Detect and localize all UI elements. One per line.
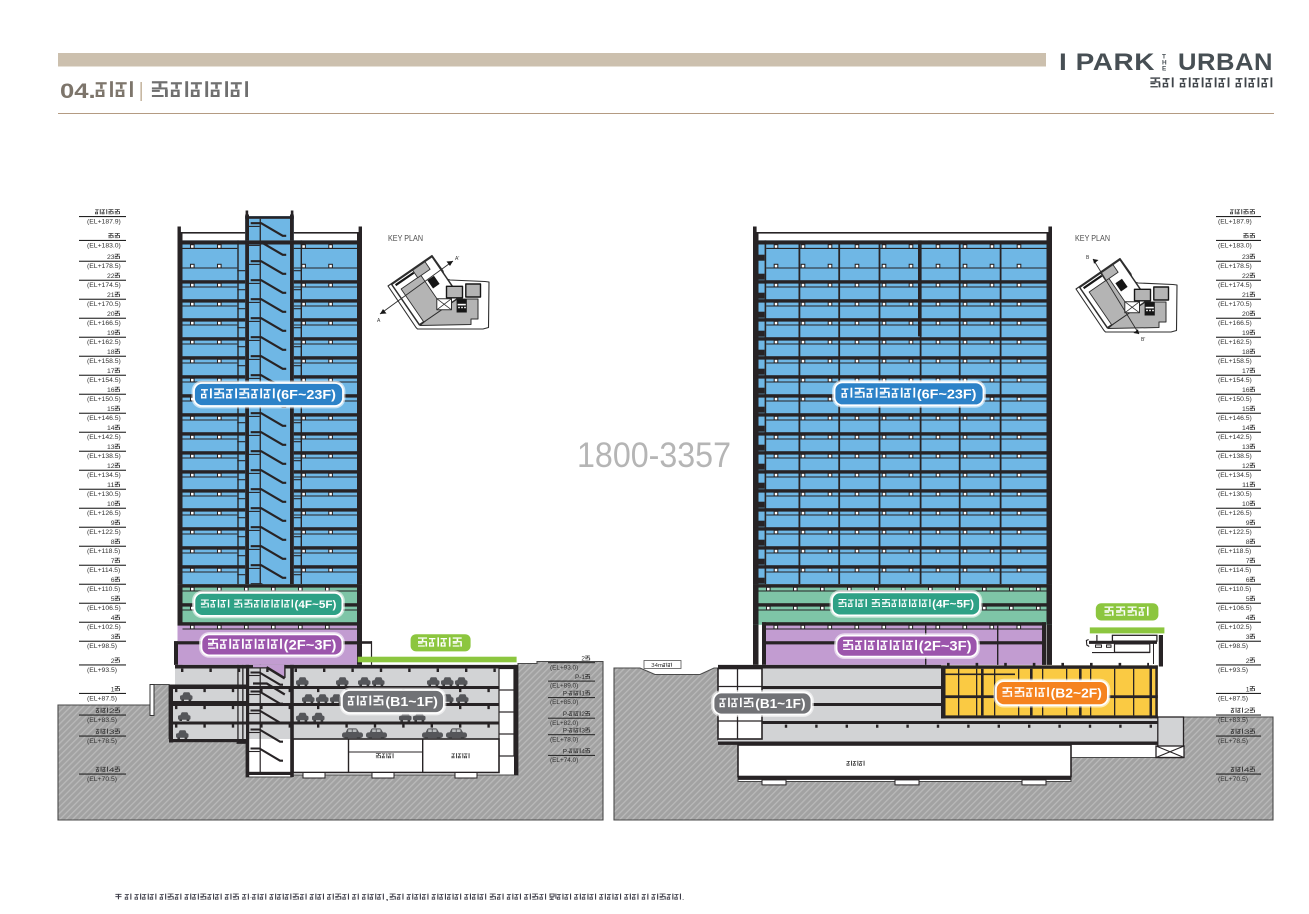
svg-text:22: 22 <box>1242 273 1250 280</box>
svg-text:2: 2 <box>581 656 585 663</box>
svg-text:10: 10 <box>107 501 115 508</box>
svg-text:(EL+138.5): (EL+138.5) <box>87 453 121 460</box>
svg-text:1: 1 <box>111 686 115 693</box>
svg-text:(EL+170.5): (EL+170.5) <box>1218 301 1252 308</box>
svg-text:(EL+138.5): (EL+138.5) <box>1218 453 1252 460</box>
svg-text:B': B' <box>1141 337 1145 343</box>
svg-text:(EL+146.5): (EL+146.5) <box>87 415 121 422</box>
svg-text:(4F~5F): (4F~5F) <box>295 599 337 611</box>
svg-text:12: 12 <box>1242 463 1250 470</box>
svg-text:(EL+93.5): (EL+93.5) <box>87 667 117 674</box>
svg-text:2: 2 <box>1246 658 1250 665</box>
svg-text:(EL+142.5): (EL+142.5) <box>1218 434 1252 441</box>
svg-text:(EL+106.5): (EL+106.5) <box>87 605 121 612</box>
svg-text:4: 4 <box>581 748 585 755</box>
svg-text:8: 8 <box>1246 539 1250 546</box>
svg-text:16: 16 <box>107 387 115 394</box>
svg-text:(EL+178.5): (EL+178.5) <box>87 263 121 270</box>
svg-text:4: 4 <box>1244 767 1250 774</box>
svg-text:19: 19 <box>1242 330 1250 337</box>
svg-text:(B1~1F): (B1~1F) <box>385 694 438 709</box>
svg-text:I PARK: I PARK <box>1059 49 1155 76</box>
svg-text:(B2~2F): (B2~2F) <box>1051 686 1102 701</box>
svg-text:20: 20 <box>1242 311 1250 318</box>
svg-text:E: E <box>1162 66 1167 73</box>
svg-text:(2F~3F): (2F~3F) <box>284 638 337 653</box>
svg-text:8: 8 <box>111 539 115 546</box>
svg-text:13: 13 <box>107 444 115 451</box>
svg-text:(EL+150.5): (EL+150.5) <box>1218 396 1252 403</box>
svg-text:(EL+150.5): (EL+150.5) <box>87 396 121 403</box>
svg-text:(EL+122.5): (EL+122.5) <box>1218 529 1252 536</box>
svg-text:(EL+134.5): (EL+134.5) <box>87 472 121 479</box>
svg-text:(4F~5F): (4F~5F) <box>932 599 974 611</box>
svg-text:(EL+70.5): (EL+70.5) <box>1218 776 1248 783</box>
svg-text:(EL+106.5): (EL+106.5) <box>1218 605 1252 612</box>
svg-text:(EL+162.5): (EL+162.5) <box>87 339 121 346</box>
svg-text:21: 21 <box>1242 292 1250 299</box>
svg-text:17: 17 <box>107 368 115 375</box>
svg-text:3: 3 <box>581 728 585 735</box>
svg-text:(EL+93.5): (EL+93.5) <box>1218 667 1248 674</box>
svg-text:(EL+114.5): (EL+114.5) <box>87 567 120 574</box>
svg-text:17: 17 <box>1242 368 1250 375</box>
svg-text:KEY PLAN: KEY PLAN <box>1075 234 1110 243</box>
svg-text:(6F~23F): (6F~23F) <box>917 386 977 401</box>
svg-text:P-: P- <box>563 691 569 698</box>
svg-text:(EL+78.5): (EL+78.5) <box>87 738 117 745</box>
svg-text:(EL+170.5): (EL+170.5) <box>87 301 121 308</box>
svg-text:(EL+82.0): (EL+82.0) <box>550 720 578 727</box>
svg-text:2: 2 <box>581 711 585 718</box>
svg-text:(6F~23F): (6F~23F) <box>276 387 336 402</box>
svg-text:(EL+158.5): (EL+158.5) <box>87 358 121 365</box>
svg-text:(EL+126.5): (EL+126.5) <box>87 510 121 517</box>
svg-text:2: 2 <box>109 708 115 715</box>
svg-text:3: 3 <box>1246 634 1250 641</box>
svg-text:(EL+154.5): (EL+154.5) <box>87 377 121 384</box>
svg-text:(EL+85.0): (EL+85.0) <box>550 699 578 706</box>
svg-text:04.: 04. <box>60 80 96 103</box>
svg-text:(B1~1F): (B1~1F) <box>755 697 805 711</box>
svg-text:(EL+87.5): (EL+87.5) <box>87 695 117 702</box>
svg-text:(EL+142.5): (EL+142.5) <box>87 434 121 441</box>
svg-text:P-: P- <box>563 748 569 755</box>
svg-text:4: 4 <box>111 615 115 622</box>
svg-text:(EL+146.5): (EL+146.5) <box>1218 415 1252 422</box>
svg-text:16: 16 <box>1242 387 1250 394</box>
svg-text:20: 20 <box>107 311 115 318</box>
svg-text:(EL+134.5): (EL+134.5) <box>1218 472 1252 479</box>
svg-text:(EL+162.5): (EL+162.5) <box>1218 339 1252 346</box>
svg-text:(EL+122.5): (EL+122.5) <box>87 529 121 536</box>
svg-text:(EL+183.0): (EL+183.0) <box>87 242 121 249</box>
svg-text:7: 7 <box>111 558 115 565</box>
svg-text:·: · <box>250 893 252 902</box>
svg-text:(EL+174.5): (EL+174.5) <box>87 282 121 289</box>
svg-text:4: 4 <box>109 767 115 774</box>
svg-text:(EL+166.5): (EL+166.5) <box>87 320 121 327</box>
svg-text:(EL+74.0): (EL+74.0) <box>550 757 578 764</box>
svg-text:(EL+187.9): (EL+187.9) <box>1218 219 1252 226</box>
svg-text:(EL+118.5): (EL+118.5) <box>87 548 120 555</box>
svg-text:2: 2 <box>1244 708 1250 715</box>
svg-text:(EL+174.5): (EL+174.5) <box>1218 282 1252 289</box>
svg-text:(EL+78.5): (EL+78.5) <box>1218 738 1248 745</box>
svg-text:5: 5 <box>1246 596 1250 603</box>
svg-text:(EL+89.0): (EL+89.0) <box>550 683 578 690</box>
svg-text:11: 11 <box>1242 482 1250 489</box>
svg-text:(EL+114.5): (EL+114.5) <box>1218 567 1251 574</box>
svg-text:P-: P- <box>563 728 569 735</box>
svg-text:7: 7 <box>1246 558 1250 565</box>
svg-text:12: 12 <box>107 463 115 470</box>
svg-text:(EL+83.5): (EL+83.5) <box>1218 717 1248 724</box>
svg-text:(EL+102.5): (EL+102.5) <box>87 624 121 631</box>
svg-text:(EL+130.5): (EL+130.5) <box>1218 491 1252 498</box>
svg-text:(EL+110.5): (EL+110.5) <box>87 586 120 593</box>
svg-text:5: 5 <box>111 596 115 603</box>
svg-text:3: 3 <box>109 729 115 736</box>
svg-text:3: 3 <box>1244 729 1250 736</box>
svg-text:3: 3 <box>111 634 115 641</box>
svg-text:9: 9 <box>1246 520 1250 527</box>
svg-text:15: 15 <box>1242 406 1250 413</box>
svg-text:19: 19 <box>107 330 115 337</box>
svg-text:2: 2 <box>111 658 115 665</box>
svg-text:(EL+98.5): (EL+98.5) <box>87 643 117 650</box>
svg-text:1800-3357: 1800-3357 <box>577 436 731 475</box>
svg-text:(EL+93.0): (EL+93.0) <box>550 664 578 671</box>
svg-text:4: 4 <box>1246 615 1250 622</box>
svg-text:KEY PLAN: KEY PLAN <box>388 234 423 243</box>
svg-text:23: 23 <box>107 254 115 261</box>
svg-text:(EL+118.5): (EL+118.5) <box>1218 548 1251 555</box>
svg-text:P-: P- <box>563 711 569 718</box>
svg-text:14: 14 <box>1242 425 1250 432</box>
svg-text:(EL+178.5): (EL+178.5) <box>1218 263 1252 270</box>
svg-text:34m: 34m <box>651 663 663 669</box>
svg-text:(EL+70.5): (EL+70.5) <box>87 776 117 783</box>
svg-text:13: 13 <box>1242 444 1250 451</box>
svg-text:(EL+187.9): (EL+187.9) <box>87 219 121 226</box>
svg-text:1: 1 <box>1246 686 1250 693</box>
svg-text:A': A' <box>455 256 459 262</box>
svg-text:(EL+87.5): (EL+87.5) <box>1218 695 1248 702</box>
svg-text:(EL+166.5): (EL+166.5) <box>1218 320 1252 327</box>
svg-text:(EL+78.0): (EL+78.0) <box>550 736 578 743</box>
svg-text:11: 11 <box>107 482 115 489</box>
svg-text:9: 9 <box>111 520 115 527</box>
svg-text:(2F~3F): (2F~3F) <box>919 639 972 654</box>
svg-text:URBAN: URBAN <box>1178 49 1273 76</box>
svg-text:(EL+98.5): (EL+98.5) <box>1218 643 1248 650</box>
svg-text:6: 6 <box>111 577 115 584</box>
svg-text:18: 18 <box>107 349 115 356</box>
svg-text:10: 10 <box>1242 501 1250 508</box>
svg-text:6: 6 <box>1246 577 1250 584</box>
svg-text:(EL+130.5): (EL+130.5) <box>87 491 121 498</box>
svg-text:15: 15 <box>107 406 115 413</box>
svg-text:,: , <box>385 893 389 902</box>
svg-text:P-1: P-1 <box>575 674 585 681</box>
svg-text:23: 23 <box>1242 254 1250 261</box>
svg-text:(EL+158.5): (EL+158.5) <box>1218 358 1252 365</box>
svg-text:1: 1 <box>581 691 585 698</box>
svg-text:(EL+110.5): (EL+110.5) <box>1218 586 1251 593</box>
svg-text:21: 21 <box>107 292 115 299</box>
svg-text:.: . <box>682 893 684 902</box>
svg-text:(EL+83.5): (EL+83.5) <box>87 717 117 724</box>
svg-text:14: 14 <box>107 425 115 432</box>
svg-text:(EL+183.0): (EL+183.0) <box>1218 242 1252 249</box>
svg-text:22: 22 <box>107 273 115 280</box>
svg-text:(EL+102.5): (EL+102.5) <box>1218 624 1252 631</box>
svg-text:18: 18 <box>1242 349 1250 356</box>
svg-text:(EL+126.5): (EL+126.5) <box>1218 510 1252 517</box>
svg-text:(EL+154.5): (EL+154.5) <box>1218 377 1252 384</box>
